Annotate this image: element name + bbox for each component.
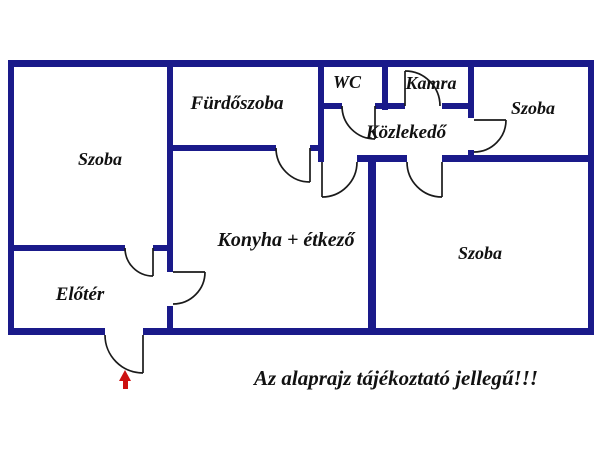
room-label-wc: WC (333, 72, 362, 92)
wall-szoba-eloter-divider-a (8, 245, 125, 251)
wall-left-divider-upper (167, 60, 173, 272)
room-labels: Szoba Fürdőszoba WC Kamra Közlekedő Szob… (55, 72, 555, 305)
door-eloter-konyha (173, 272, 205, 304)
wall-kozlekedo-bottom-b (442, 155, 594, 162)
outer-wall-left (8, 60, 14, 335)
outer-wall-bottom-left (8, 328, 105, 335)
room-label-szoba-top-right: Szoba (511, 98, 555, 118)
door-entrance (105, 335, 143, 373)
door-szoba-bottom-right (407, 162, 442, 197)
room-label-kamra: Kamra (404, 73, 456, 93)
wall-kozlekedo-bottom-a (357, 155, 407, 162)
door-szoba-top-right (474, 120, 506, 152)
wall-wc-kamra-divider (382, 60, 388, 110)
door-szoba-left (125, 248, 153, 276)
wall-wc-kamra-bottom-a (318, 103, 342, 109)
room-label-furdoszoba: Fürdőszoba (190, 93, 284, 114)
floor-plan-drawing: Szoba Fürdőszoba WC Kamra Közlekedő Szob… (0, 0, 600, 450)
room-label-eloter: Előtér (55, 284, 105, 305)
outer-wall-right (588, 60, 594, 335)
wall-szoba-tr-left-upper (468, 60, 474, 118)
room-label-kozlekedo: Közlekedő (365, 122, 448, 143)
wall-szoba-eloter-divider-b (153, 245, 173, 251)
room-label-szoba-bottom-right: Szoba (458, 243, 502, 263)
door-furdoszoba (276, 148, 310, 182)
door-konyha (322, 162, 357, 197)
door-swings (105, 71, 506, 373)
disclaimer-text: Az alaprajz tájékoztató jellegű!!! (252, 366, 538, 390)
wall-furdoszoba-bottom-b (310, 145, 324, 151)
wall-wc-kamra-bottom-c (442, 103, 474, 109)
wall-konyha-szoba-divider (368, 155, 376, 335)
entrance-arrow-icon (119, 370, 131, 389)
room-label-szoba-left: Szoba (78, 149, 122, 169)
outer-wall-top (8, 60, 594, 67)
room-label-konyha-etkezo: Konyha + étkező (217, 229, 357, 251)
wall-furdoszoba-bottom-a (167, 145, 276, 151)
wall-wc-kamra-bottom-b (375, 103, 405, 109)
floor-plan-figure: Szoba Fürdőszoba WC Kamra Közlekedő Szob… (0, 0, 600, 450)
wall-left-divider-lower (167, 306, 173, 335)
